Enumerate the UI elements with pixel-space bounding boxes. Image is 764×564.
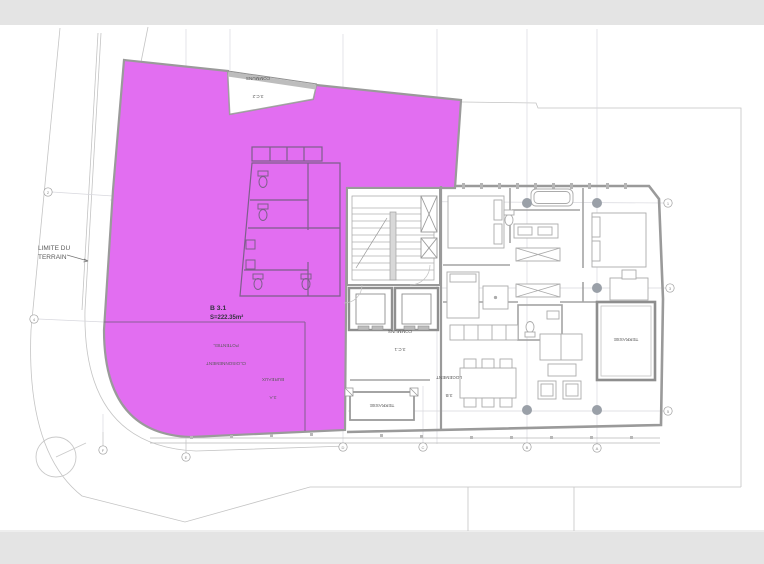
- unit-code-label: B 3.1: [210, 305, 226, 312]
- room-bureaux-code: 3.A: [269, 395, 277, 400]
- duct-shafts: [421, 196, 437, 258]
- bottom-gray-band: [0, 532, 764, 564]
- elevators: [349, 288, 438, 330]
- terrain-label-line1: LIMITE DU: [38, 245, 70, 252]
- axis-d: D: [342, 445, 345, 450]
- room-cloisonnement-line1: CLOISONNEMENT: [206, 361, 246, 366]
- axis-e: E: [185, 455, 188, 460]
- floorplan-canvas: LIMITE DU TERRAIN B 3.1 S=222.35m² 3.C.2…: [0, 0, 764, 564]
- terrasse-center-label: TERRASSE: [370, 403, 395, 408]
- core-block: [344, 188, 440, 330]
- room-cloisonnement-line2: POTENTIEL: [213, 343, 239, 348]
- room-communs-top-code: 3.C.2: [252, 94, 263, 99]
- room-communs-top-name: COMMUNS: [246, 76, 270, 81]
- room-communs-mid-code: 3.C.1: [394, 347, 405, 352]
- tree-symbol: [36, 437, 86, 477]
- terrain-label-line2: TERRAIN: [38, 254, 67, 261]
- axis-b: B: [526, 445, 529, 450]
- top-gray-band: [0, 0, 764, 25]
- room-logement-code: 3.B: [446, 393, 453, 398]
- terrace-center: [345, 380, 430, 420]
- terrasse-right-label: TERRASSE: [614, 337, 639, 342]
- room-logement-name: LOGEMENT: [436, 375, 462, 380]
- floorplan-page: LIMITE DU TERRAIN B 3.1 S=222.35m² 3.C.2…: [0, 0, 764, 564]
- axis-c: C: [422, 445, 425, 450]
- unit-area-label: S=222.35m²: [210, 314, 243, 321]
- axis-a: A: [596, 446, 599, 451]
- room-bureaux-name: BUREAUX: [262, 377, 284, 382]
- room-communs-mid-name: COMMUNS: [388, 329, 412, 334]
